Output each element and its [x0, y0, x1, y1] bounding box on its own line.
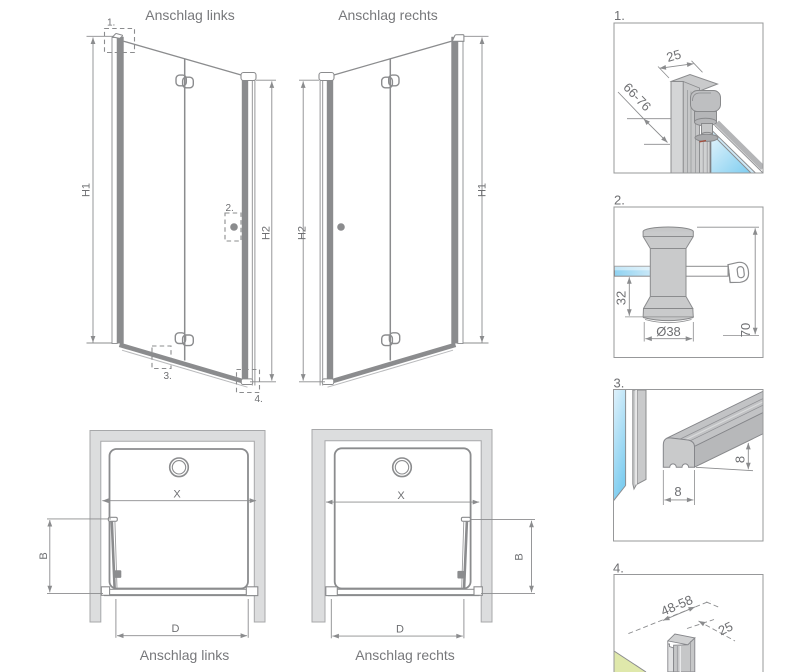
svg-text:H2: H2: [261, 226, 273, 240]
svg-text:X: X: [397, 490, 405, 502]
svg-text:Anschlag rechts: Anschlag rechts: [338, 7, 438, 23]
svg-text:Ø38: Ø38: [656, 324, 681, 339]
svg-text:Anschlag links: Anschlag links: [145, 7, 235, 23]
svg-text:32: 32: [614, 291, 629, 305]
svg-text:1.: 1.: [107, 18, 115, 29]
svg-text:Anschlag rechts: Anschlag rechts: [355, 647, 455, 663]
svg-text:2.: 2.: [226, 203, 234, 214]
svg-text:70: 70: [738, 323, 753, 337]
svg-text:25: 25: [716, 619, 735, 639]
svg-text:1.: 1.: [614, 8, 625, 23]
svg-text:D: D: [396, 623, 404, 635]
svg-text:8: 8: [674, 484, 681, 499]
svg-text:D: D: [172, 623, 180, 635]
svg-text:B: B: [38, 552, 50, 559]
svg-text:25: 25: [665, 46, 683, 64]
svg-text:4.: 4.: [613, 561, 624, 576]
svg-text:4.: 4.: [255, 394, 263, 405]
svg-text:3.: 3.: [614, 376, 625, 391]
svg-text:B: B: [514, 553, 526, 560]
svg-text:8: 8: [733, 456, 748, 463]
svg-text:Anschlag links: Anschlag links: [140, 647, 230, 663]
svg-text:X: X: [173, 489, 181, 501]
svg-text:H2: H2: [297, 226, 309, 240]
svg-text:H1: H1: [81, 183, 93, 197]
svg-text:66-76: 66-76: [620, 80, 654, 114]
svg-text:3.: 3.: [164, 371, 172, 382]
svg-text:2.: 2.: [614, 193, 625, 208]
svg-text:H1: H1: [477, 183, 489, 197]
